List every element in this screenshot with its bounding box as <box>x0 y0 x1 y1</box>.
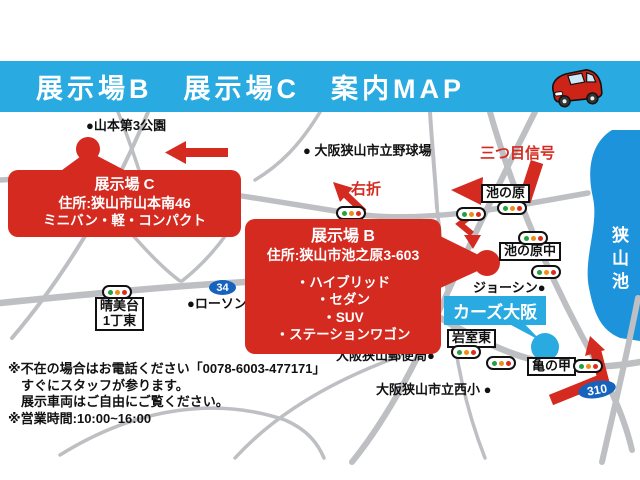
note-line-1: ※不在の場合はお電話ください「0078-6003-477171」 <box>8 361 326 378</box>
site-b-callout: 展示場 B 住所:狭山市池之原3-603 ・ハイブリッド ・セダン ・SUV ・… <box>245 219 441 354</box>
site-b-marker <box>474 250 500 276</box>
page-title: 展示場B 展示場C 案内MAP <box>36 67 465 106</box>
header-bar: 展示場B 展示場C 案内MAP <box>0 61 640 112</box>
route-34-number: 34 <box>216 282 228 294</box>
lake-name: 狭山池 <box>606 226 631 295</box>
traffic-signal-icon <box>497 201 527 215</box>
site-b-vehicle-3: ・SUV <box>245 309 441 327</box>
traffic-signal-icon <box>518 231 548 245</box>
site-b-address: 住所:狭山市池之原3-603 <box>245 247 441 265</box>
traffic-signal-icon <box>336 206 366 220</box>
landmark-lawson: ●ローソン <box>187 293 247 312</box>
traffic-signal-icon <box>102 285 132 299</box>
traffic-signal-icon <box>531 265 561 279</box>
note-line-4: ※営業時間:10:00~16:00 <box>8 411 326 428</box>
landmark-yamamoto-park: ●山本第3公園 <box>86 115 166 134</box>
route-310-number: 310 <box>586 381 608 398</box>
notes-block: ※不在の場合はお電話ください「0078-6003-477171」 すぐにスタッフ… <box>8 361 326 427</box>
shop-cars-osaka: カーズ大阪 <box>444 296 546 325</box>
landmark-joshin: ジョーシン● <box>473 277 546 296</box>
site-c-title: 展示場 C <box>8 176 241 195</box>
landmark-nishi-elementary: 大阪狭山市立西小 ● <box>376 379 491 398</box>
site-c-vehicles: ミニバン・軽・コンパクト <box>8 212 241 230</box>
intersection-harumidai: 晴美台 1丁東 <box>95 297 144 331</box>
harumidai-line1: 晴美台 <box>100 298 139 313</box>
harumidai-line2: 1丁東 <box>103 313 136 328</box>
direction-right-turn: 右折 <box>351 178 381 199</box>
site-b-vehicle-1: ・ハイブリッド <box>245 274 441 292</box>
traffic-signal-icon <box>573 359 603 373</box>
site-b-vehicle-4: ・ステーションワゴン <box>245 326 441 344</box>
site-b-title: 展示場 B <box>245 227 441 247</box>
landmark-baseball-stadium: ● 大阪狭山市立野球場 <box>303 140 431 159</box>
car-icon <box>546 63 606 109</box>
traffic-signal-icon <box>486 356 516 370</box>
map-flyer: 展示場B 展示場C 案内MAP ●山本第3公園 ● 大阪狭山市立野球場 右折 三… <box>0 0 640 480</box>
traffic-signal-icon <box>451 345 481 359</box>
note-line-3: 展示車両はご自由にご覧ください。 <box>21 394 326 411</box>
site-c-marker <box>76 137 100 161</box>
left-arrow-icon <box>165 141 228 164</box>
route-badge-34: 34 <box>209 280 236 295</box>
direction-third-signal: 三つ目信号 <box>480 142 555 163</box>
site-c-address: 住所:狭山市山本南46 <box>8 195 241 213</box>
site-c-callout: 展示場 C 住所:狭山市山本南46 ミニバン・軽・コンパクト <box>8 170 241 237</box>
site-b-vehicle-2: ・セダン <box>245 291 441 309</box>
intersection-kame-no-ko: 亀の甲 <box>527 357 576 376</box>
note-line-2: すぐにスタッフが参ります。 <box>21 378 326 395</box>
traffic-signal-icon <box>456 207 486 221</box>
